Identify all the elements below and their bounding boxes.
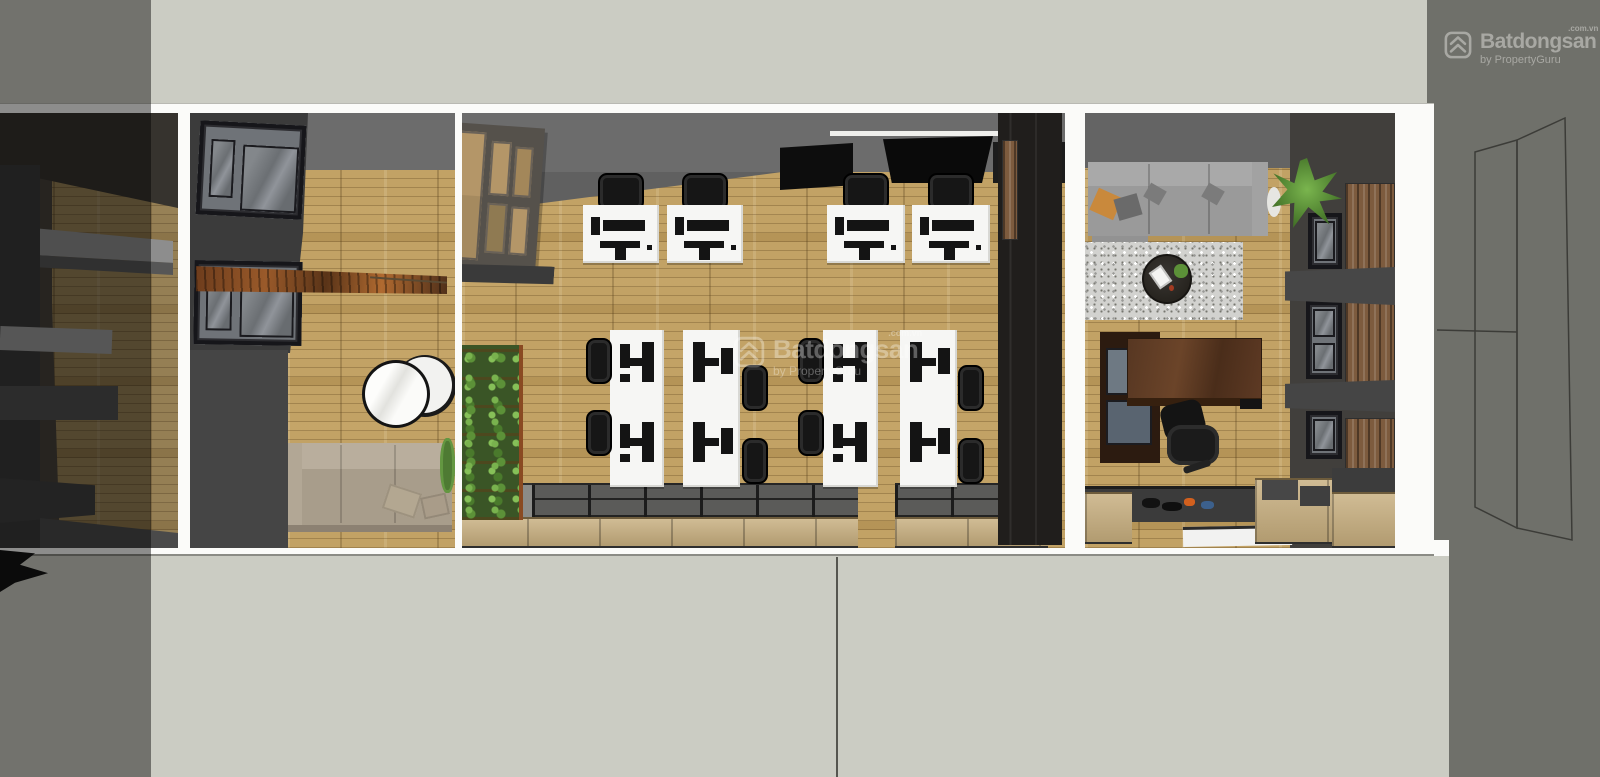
desk-equipment bbox=[620, 344, 630, 368]
side-table-front-top bbox=[365, 363, 427, 425]
plant-spill bbox=[440, 438, 455, 493]
desk-equipment bbox=[855, 342, 867, 382]
reception-sofa bbox=[288, 443, 452, 535]
desk-equipment bbox=[835, 217, 844, 235]
exec-storage-corner bbox=[1332, 492, 1395, 548]
office-furniture-layer bbox=[462, 113, 1065, 548]
office-chair bbox=[586, 338, 612, 384]
workstation-desk bbox=[912, 205, 990, 263]
bench-desk-strip bbox=[900, 330, 957, 487]
sofa-seam bbox=[340, 445, 342, 523]
desk-equipment bbox=[615, 248, 626, 260]
gate-outline bbox=[1430, 100, 1600, 560]
sofa-back bbox=[288, 443, 452, 469]
desk-equipment bbox=[620, 424, 630, 448]
desk-equipment bbox=[843, 358, 855, 366]
desk-equipment bbox=[922, 358, 936, 366]
sofa-arm bbox=[288, 443, 302, 525]
desk-equipment bbox=[833, 344, 843, 368]
desk-equipment bbox=[944, 248, 955, 260]
desk-equipment bbox=[620, 454, 630, 462]
ground-seam-line bbox=[836, 557, 838, 777]
office-chair bbox=[958, 438, 984, 484]
shoes-orange bbox=[1184, 498, 1195, 506]
office-chair bbox=[742, 438, 768, 484]
desk-equipment bbox=[843, 438, 855, 446]
desk-equipment bbox=[891, 245, 896, 250]
coffee-table-decor bbox=[1169, 285, 1174, 291]
exec-sofa-back bbox=[1088, 162, 1268, 186]
exec-desk-top bbox=[1127, 338, 1262, 405]
desk-equipment bbox=[833, 454, 843, 462]
office-chair bbox=[798, 338, 824, 384]
room-reception bbox=[190, 113, 455, 548]
room-open-office bbox=[462, 113, 1065, 548]
exec-desk-bracket bbox=[1240, 399, 1262, 409]
desk-equipment bbox=[847, 220, 889, 231]
desk-equipment bbox=[731, 245, 736, 250]
desk-equipment bbox=[844, 241, 884, 248]
coffee-table-plant bbox=[1174, 264, 1188, 278]
bench-desk-strip bbox=[610, 330, 664, 487]
office-chair bbox=[586, 410, 612, 456]
exec-window-1 bbox=[1308, 213, 1342, 269]
desk-equipment bbox=[687, 220, 729, 231]
left-shadow-overlay bbox=[0, 0, 151, 777]
desk-equipment bbox=[693, 422, 705, 462]
bench-desk-strip bbox=[823, 330, 878, 487]
desk-equipment bbox=[705, 358, 719, 366]
exec-storage-corner-dark bbox=[1332, 468, 1395, 492]
desk-equipment bbox=[684, 241, 724, 248]
shoes bbox=[1162, 502, 1182, 511]
desk-equipment bbox=[675, 217, 684, 235]
desk-equipment bbox=[833, 424, 843, 448]
desk-equipment bbox=[938, 428, 950, 454]
floorplan-render: .com.vn Batdongsan by PropertyGuru .com.… bbox=[0, 0, 1600, 777]
desk-equipment bbox=[910, 422, 922, 462]
desk-equipment bbox=[910, 342, 922, 382]
wall-ledge-1 bbox=[1285, 267, 1395, 305]
desk-equipment bbox=[855, 422, 867, 462]
desk-equipment bbox=[859, 248, 870, 260]
exec-bench-left bbox=[1085, 492, 1132, 544]
shoes-blue bbox=[1201, 501, 1214, 509]
sofa-shadow bbox=[288, 525, 452, 532]
building-shell-step bbox=[1434, 540, 1449, 556]
desk-equipment bbox=[833, 374, 843, 382]
desk-equipment bbox=[721, 428, 733, 454]
wall-ledge-2 bbox=[1285, 380, 1395, 412]
desk-equipment bbox=[976, 245, 981, 250]
desk-equipment bbox=[922, 438, 936, 446]
reception-lower-wall bbox=[190, 350, 288, 548]
reception-window-top bbox=[196, 120, 307, 219]
office-chair bbox=[958, 365, 984, 411]
desk-equipment bbox=[699, 248, 710, 260]
office-chair bbox=[742, 365, 768, 411]
exec-chair-seat bbox=[1167, 425, 1219, 465]
desk-equipment bbox=[647, 245, 652, 250]
desk-equipment bbox=[591, 217, 600, 235]
cabinet-shelf bbox=[1106, 400, 1152, 445]
office-chair bbox=[798, 410, 824, 456]
desk-equipment bbox=[642, 342, 654, 382]
bench-desk-strip bbox=[683, 330, 740, 487]
room-private-office bbox=[1085, 113, 1395, 548]
workstation-desk bbox=[667, 205, 743, 263]
desk-equipment bbox=[920, 217, 929, 235]
desk-equipment bbox=[600, 241, 640, 248]
bench-box bbox=[1262, 480, 1298, 500]
workstation-desk bbox=[827, 205, 905, 263]
desk-equipment bbox=[630, 438, 642, 446]
shoes bbox=[1142, 498, 1160, 508]
desk-equipment bbox=[721, 348, 733, 374]
desk-equipment bbox=[642, 422, 654, 462]
desk-equipment bbox=[603, 220, 645, 231]
bench-box bbox=[1300, 486, 1330, 506]
workstation-desk bbox=[583, 205, 659, 263]
reception-top-wall-gray bbox=[295, 113, 455, 170]
desk-equipment bbox=[620, 374, 630, 382]
exec-window-2 bbox=[1306, 301, 1342, 379]
desk-equipment bbox=[705, 438, 719, 446]
desk-equipment bbox=[693, 342, 705, 382]
desk-equipment bbox=[929, 241, 969, 248]
desk-equipment bbox=[630, 358, 642, 366]
desk-equipment bbox=[932, 220, 974, 231]
exec-sofa-arm bbox=[1252, 162, 1268, 236]
desk-equipment bbox=[938, 348, 950, 374]
exec-window-3 bbox=[1306, 411, 1342, 459]
